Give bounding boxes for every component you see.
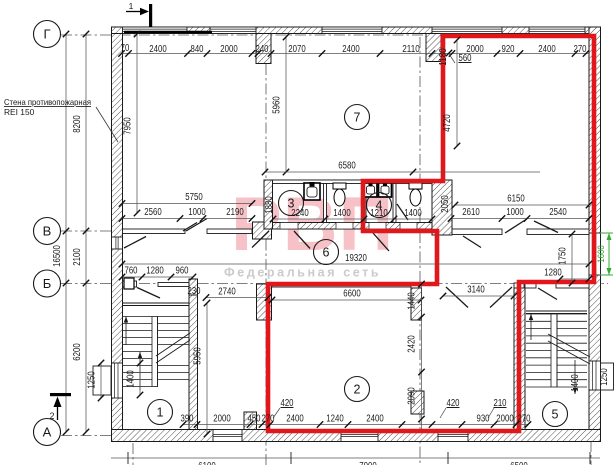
svg-text:2070: 2070	[288, 44, 306, 55]
svg-text:В: В	[43, 224, 52, 239]
svg-text:1400: 1400	[570, 374, 581, 392]
svg-text:2560: 2560	[144, 207, 162, 218]
svg-text:1000: 1000	[188, 207, 206, 218]
svg-text:1400: 1400	[333, 208, 351, 219]
svg-text:5750: 5750	[185, 192, 203, 203]
svg-text:6: 6	[323, 246, 330, 260]
svg-text:2190: 2190	[226, 207, 244, 218]
svg-text:2610: 2610	[462, 207, 480, 218]
svg-text:2400: 2400	[342, 44, 360, 55]
svg-text:8200: 8200	[72, 115, 83, 133]
svg-text:7: 7	[354, 111, 361, 125]
svg-text:2000: 2000	[496, 414, 514, 425]
svg-text:450: 450	[248, 414, 261, 425]
svg-text:1600: 1600	[596, 245, 607, 262]
svg-text:1250: 1250	[599, 368, 610, 386]
svg-text:1180: 1180	[438, 48, 449, 66]
svg-text:960: 960	[176, 266, 189, 277]
svg-text:930: 930	[477, 414, 490, 425]
svg-text:5: 5	[552, 408, 559, 422]
svg-text:6200: 6200	[72, 343, 83, 361]
svg-text:2400: 2400	[286, 414, 304, 425]
svg-text:240: 240	[256, 44, 269, 55]
svg-text:2400: 2400	[538, 44, 556, 55]
svg-text:16500: 16500	[52, 245, 63, 267]
svg-text:2420: 2420	[407, 335, 418, 353]
svg-text:1280: 1280	[146, 266, 164, 277]
svg-text:560: 560	[459, 53, 472, 64]
svg-text:270: 270	[574, 44, 587, 55]
svg-text:Федеральная сеть: Федеральная сеть	[224, 266, 381, 280]
svg-text:270: 270	[262, 414, 275, 425]
svg-text:2050: 2050	[440, 195, 451, 213]
svg-text:840: 840	[191, 44, 204, 55]
svg-text:4720: 4720	[442, 114, 453, 132]
svg-text:7950: 7950	[123, 117, 134, 135]
svg-text:2400: 2400	[366, 414, 384, 425]
svg-text:420: 420	[447, 398, 460, 409]
svg-text:2: 2	[49, 411, 54, 421]
svg-text:19320: 19320	[345, 253, 367, 264]
svg-text:3: 3	[288, 197, 295, 211]
svg-text:70: 70	[121, 43, 130, 54]
svg-text:Г: Г	[43, 27, 50, 42]
svg-text:760: 760	[125, 266, 138, 277]
svg-text:1: 1	[129, 1, 134, 11]
svg-text:230: 230	[188, 286, 201, 297]
svg-text:1240: 1240	[326, 414, 344, 425]
svg-text:1: 1	[157, 406, 164, 420]
svg-text:2090: 2090	[407, 387, 418, 405]
svg-text:2: 2	[354, 383, 361, 397]
svg-text:1880: 1880	[264, 196, 275, 214]
svg-text:920: 920	[502, 44, 515, 55]
svg-text:6150: 6150	[507, 194, 525, 205]
svg-text:5960: 5960	[272, 96, 283, 114]
svg-text:2000: 2000	[220, 44, 238, 55]
svg-text:1250: 1250	[87, 371, 98, 389]
svg-text:3140: 3140	[467, 285, 485, 296]
svg-text:1400: 1400	[404, 208, 422, 219]
svg-text:1000: 1000	[506, 207, 524, 218]
svg-text:5950: 5950	[193, 347, 204, 365]
svg-text:270: 270	[518, 414, 531, 425]
svg-text:2110: 2110	[402, 44, 420, 55]
svg-text:Стена противопожарная: Стена противопожарная	[4, 97, 91, 107]
svg-text:6600: 6600	[343, 289, 361, 300]
svg-text:420: 420	[281, 398, 294, 409]
svg-text:390: 390	[181, 414, 194, 425]
svg-text:REI 150: REI 150	[4, 107, 35, 117]
svg-text:Б: Б	[43, 276, 52, 291]
svg-text:1400: 1400	[126, 370, 137, 388]
svg-text:210: 210	[494, 398, 507, 409]
svg-text:7000: 7000	[359, 461, 377, 465]
svg-text:6100: 6100	[198, 461, 216, 465]
svg-text:А: А	[43, 425, 52, 440]
svg-text:1440: 1440	[407, 292, 418, 310]
svg-text:6580: 6580	[338, 161, 356, 172]
svg-text:2100: 2100	[72, 248, 83, 266]
svg-text:6500: 6500	[510, 461, 528, 465]
svg-text:2000: 2000	[213, 414, 231, 425]
svg-text:4: 4	[376, 199, 383, 213]
svg-text:2540: 2540	[549, 207, 567, 218]
svg-text:2740: 2740	[218, 287, 236, 298]
svg-text:2400: 2400	[149, 44, 167, 55]
svg-text:1280: 1280	[544, 268, 562, 279]
svg-text:1750: 1750	[558, 247, 569, 265]
